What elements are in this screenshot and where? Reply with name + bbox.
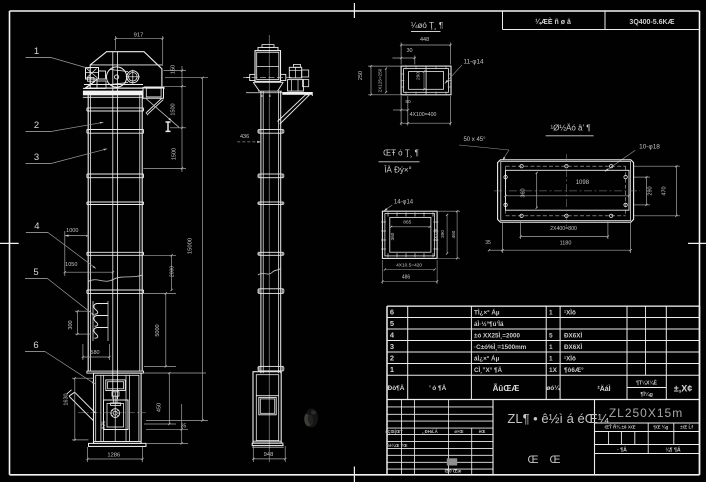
svg-text:5: 5 [549,332,553,339]
svg-text:5: 5 [33,267,38,278]
svg-text:35: 35 [485,240,491,246]
svg-text:1630: 1630 [64,393,70,405]
svg-text:áÌ¿×° Áµ: áÌ¿×° Áµ [474,353,500,362]
svg-text:Éè¼Œ ŸŒ: Éè¼Œ ŸŒ [387,443,409,448]
svg-text:²ÄáÌ: ²ÄáÌ [597,384,610,393]
svg-text:6: 6 [33,340,38,351]
svg-text:948: 948 [264,452,274,458]
svg-text:¶T¼X¼È: ¶T¼X¼È [636,379,658,387]
svg-text:1050: 1050 [65,262,77,268]
svg-text:ø×Œ: ø×Œ [454,429,464,434]
svg-text:50: 50 [405,99,411,105]
svg-text:3: 3 [390,342,394,351]
svg-text:360: 360 [390,232,395,240]
svg-text:5000: 5000 [155,324,161,336]
svg-text:Ðò¶Ä: Ðò¶Ä [388,384,405,392]
svg-text:Œ: Œ [550,454,561,466]
svg-text:±Œ Ĺf: ±Œ Ĺf [680,424,693,430]
svg-text:ÃûŒÆ: ÃûŒÆ [493,384,520,393]
svg-text:1: 1 [390,365,394,374]
svg-text:15000: 15000 [188,238,194,254]
svg-text:450: 450 [157,403,163,412]
svg-text:460: 460 [451,230,456,238]
svg-text:¼¶ ¶Ä: ¼¶ ¶Ä [665,447,681,454]
svg-text:CÌ¸”X° ¶Ä: CÌ¸”X° ¶Ä [474,365,503,374]
svg-text:øó¼: øó¼ [546,384,560,392]
svg-text:3Q400-5.6KÆ: 3Q400-5.6KÆ [629,19,674,26]
svg-text:TÌ¿×° Áµ: TÌ¿×° Áµ [474,307,500,316]
svg-text:ZL¶ • ê½ì á éŒ¼: ZL¶ • ê½ì á éŒ¼ [507,411,608,426]
svg-text:14-φ14: 14-φ14 [394,200,414,206]
svg-text:825: 825 [101,421,107,430]
svg-text:448: 448 [420,37,429,43]
svg-text:2000: 2000 [169,266,175,277]
svg-text:Œ0 Œæ: Œ0 Œæ [445,469,462,474]
svg-text:360: 360 [521,188,527,197]
svg-text:¼øó Ţ¸ ¶: ¼øó Ţ¸ ¶ [411,21,443,30]
svg-text:1500: 1500 [171,103,177,115]
svg-text:¶Ì¼g: ¶Ì¼g [640,390,653,398]
svg-text:11-φ14: 11-φ14 [463,59,484,66]
svg-text:4: 4 [34,221,39,232]
svg-text:Œ: Œ [528,454,539,466]
svg-text:35: 35 [181,424,187,430]
svg-text:470: 470 [662,186,668,195]
svg-text:·C±ó%Ì¸=1500mm: ·C±ó%Ì¸=1500mm [474,342,527,351]
svg-text:6: 6 [390,307,394,316]
svg-text:¶Œ ¼g: ¶Œ ¼g [653,424,668,430]
svg-text:±ó XX25Ì¸=2000: ±ó XX25Ì¸=2000 [474,330,520,339]
svg-text:,¸ÐǶĹÂ: ,¸ÐǶĹÂ [422,429,438,434]
svg-text:1: 1 [549,355,553,362]
svg-text:¼ÆÈ ñ ø â: ¼ÆÈ ñ ø â [535,17,571,26]
svg-text:¶ô6Æ°: ¶ô6Æ° [564,366,584,374]
svg-text:ZL250X15m: ZL250X15m [609,406,683,420]
svg-text:436: 436 [240,134,249,140]
svg-text:1: 1 [549,309,553,316]
svg-text:150: 150 [171,65,177,74]
svg-text:1180: 1180 [560,240,572,246]
svg-text:5: 5 [390,319,394,328]
svg-text:2X125: 2X125 [433,228,438,241]
svg-text:¹XÌô: ¹XÌô [564,307,576,316]
svg-text:290: 290 [648,186,654,195]
svg-text:±ÇŒ|ŒŤ: ±ÇŒ|ŒŤ [385,429,403,434]
svg-text:50 x 45°: 50 x 45° [463,137,486,143]
svg-text:2: 2 [390,353,394,362]
svg-text:917: 917 [134,33,144,39]
svg-text:290: 290 [416,72,422,80]
svg-text:580: 580 [90,350,99,356]
svg-text:ĪÀ Ðý×°: ĪÀ Ðý×° [384,166,411,175]
svg-text:4X100=400: 4X100=400 [410,112,437,118]
svg-text:ÐX6XÌ: ÐX6XÌ [564,342,582,351]
svg-text:1: 1 [34,46,39,57]
svg-text:1000: 1000 [66,228,78,234]
svg-text:áÌ·½°¶ú’Ìä: áÌ·½°¶ú’Ìä [474,319,504,328]
svg-text:· ¶Ä: · ¶Ä [617,447,627,454]
svg-text:±,X¢: ±,X¢ [674,384,692,394]
svg-text:250: 250 [358,71,364,80]
svg-text:1098: 1098 [576,180,590,186]
svg-text:3: 3 [34,152,39,163]
svg-text:1: 1 [549,344,553,351]
svg-text:390: 390 [440,230,445,238]
svg-text:èŒ: èŒ [479,429,486,434]
svg-text:¹Ø½Äó â’ ¶: ¹Ø½Äó â’ ¶ [550,124,590,133]
svg-text:10-φ18: 10-φ18 [639,144,660,151]
svg-text:1286: 1286 [107,453,120,459]
svg-text:1500: 1500 [172,148,178,160]
svg-text:1X: 1X [549,367,558,374]
svg-text:2: 2 [34,120,39,131]
svg-text:ŒŤ Ř¼ ±ê XŒ: ŒŤ Ř¼ ±ê XŒ [604,423,636,430]
svg-text:ÐX6XÌ: ÐX6XÌ [564,330,582,339]
svg-text:2X400=800: 2X400=800 [550,226,577,232]
svg-text:865: 865 [403,220,411,226]
svg-text:2X125=250: 2X125=250 [378,68,383,92]
svg-text:30: 30 [406,48,412,54]
svg-text:¹XÌô: ¹XÌô [564,353,576,362]
svg-text:’ ó ¶Ä: ’ ó ¶Ä [429,384,447,392]
svg-text:486: 486 [402,274,411,280]
svg-text:4X10.5=420: 4X10.5=420 [396,262,422,268]
svg-text:ŒŦ ó Ţ¸ ¶: ŒŦ ó Ţ¸ ¶ [383,148,419,157]
svg-text:300: 300 [68,320,74,329]
